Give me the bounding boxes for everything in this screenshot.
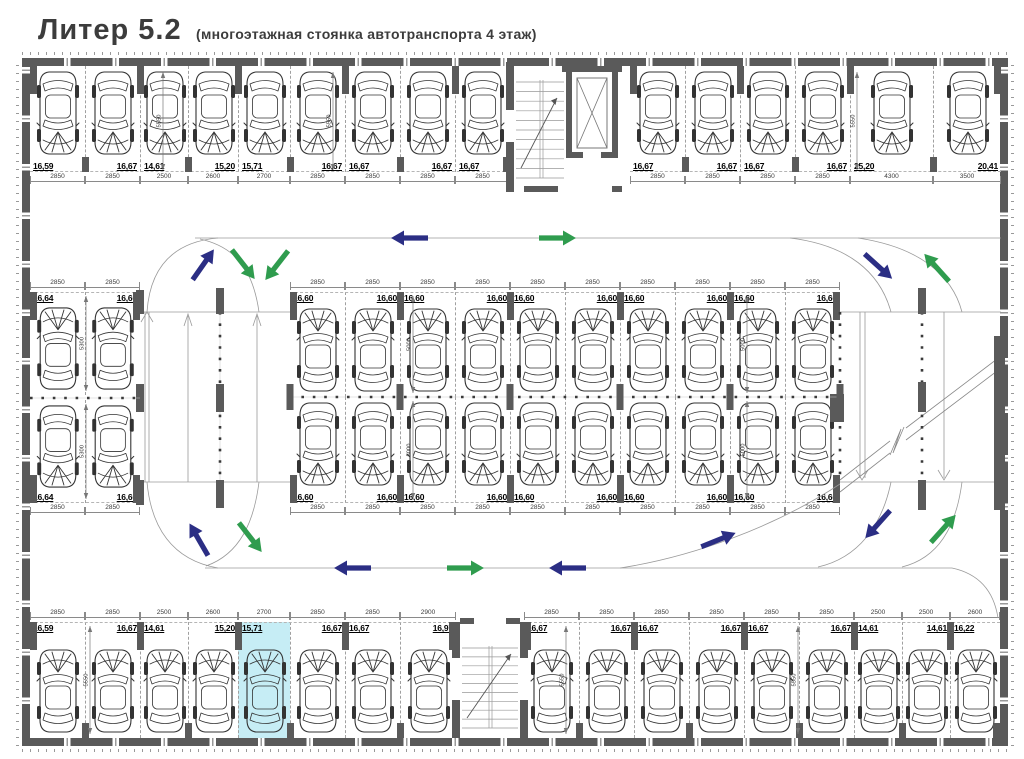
car-icon [626,400,670,488]
column-pier [452,66,459,94]
wall-stub [82,157,89,172]
parking-stall[interactable]: 16,60 [565,397,620,503]
parking-stall[interactable]: 14,61 [140,622,188,738]
parking-stall[interactable]: 16,67 [795,66,850,172]
parking-row-bottom-left: 16,59 16,67 14,61 15,20 15,71 16,67 16,6… [30,622,456,738]
wall-stub [930,157,937,172]
parking-stall[interactable]: 15,20 [188,622,238,738]
elevator-shaft [562,66,622,192]
stall-front-line [524,622,1000,623]
parking-stall[interactable]: 25,20 [850,66,933,172]
stall-width-dim: 2850 [785,504,840,516]
stall-width-dim: 2850 [785,279,840,291]
car-icon [946,69,990,157]
stall-width-dim: 2850 [744,609,799,621]
outer-wall-top [22,58,1008,66]
column-pier [833,292,840,320]
parking-row-left-block-bottom: 16,64 16,60 [30,400,140,503]
stall-area-label: 16,60 [597,492,617,502]
window-ticks-right [1011,58,1014,746]
parking-row-top-left: 16,59 16,67 14,61 15,20 15,71 16,67 16,6… [30,66,510,172]
stall-width-dim: 2850 [345,609,400,621]
width-dimension-chain: 285028502500260027002850285028502850 [30,173,510,185]
car-icon [461,306,505,394]
car-icon [461,69,505,157]
stall-area-label: 16,59 [33,161,53,171]
stall-area-label: 16,60 [404,492,424,502]
down-flow-arrow [549,561,586,576]
car-icon [351,647,395,735]
parking-stall[interactable]: 16,22 [950,622,1000,738]
car-icon [905,647,949,735]
car-icon [351,69,395,157]
stall-width-dim: 2850 [689,609,744,621]
car-icon [91,69,135,157]
parking-stall[interactable]: 16,67 [579,622,634,738]
parking-stall[interactable]: 16,60 [400,292,455,397]
width-dimension-chain: 28502850 [30,279,140,291]
stall-width-dim: 2850 [675,279,730,291]
car-icon [91,647,135,735]
wall-stub [397,723,404,738]
column-pier [727,292,734,320]
parking-stall[interactable]: 16,60 [400,397,455,503]
car-icon [243,647,287,735]
column-pier [617,475,624,503]
parking-stall[interactable]: 16,67 [799,622,854,738]
parking-stall[interactable]: 16,60 [620,292,675,397]
car-icon [296,400,340,488]
car-icon [746,69,790,157]
column-pier [30,292,37,320]
car-icon [296,69,340,157]
stall-width-dim: 3500 [933,173,1001,185]
column-pier [290,292,297,320]
stall-width-dim: 2850 [675,504,730,516]
stall-area-label: 16,67 [633,161,653,171]
stall-area-label: 15,20 [215,161,235,171]
car-icon [91,305,135,392]
car-icon [736,306,780,394]
down-flow-arrow [187,245,221,284]
up-flow-arrow [226,245,261,283]
wall-stub [185,723,192,738]
stall-area-label: 16,67 [611,623,631,633]
stall-area-label: 25,20 [854,161,874,171]
parking-stall[interactable]: 16,59 [30,622,85,738]
stall-area-label: 14,61 [144,623,164,633]
stall-area-label: 16,67 [117,623,137,633]
parking-stall[interactable]: 16,67 [345,66,400,172]
car-icon [791,400,835,488]
wall-stub [397,157,404,172]
parking-stall[interactable]: 16,60 [455,397,510,503]
stall-area-label: 20,41 [978,161,998,171]
parking-stall[interactable]: 16,67 [85,622,140,738]
parking-stall[interactable]: 16,67 [290,622,345,738]
parking-stall[interactable]: 16,60 [565,292,620,397]
wall-stub [503,157,510,172]
stall-width-dim: 2850 [345,173,400,185]
parking-stall[interactable]: 16,67 [290,66,345,172]
stall-area-label: 16,60 [597,293,617,303]
stall-area-label: 16,60 [707,293,727,303]
stall-width-dim: 2850 [30,279,85,291]
stall-area-label: 16,60 [404,293,424,303]
stall-area-label: 16,67 [827,161,847,171]
column-pier [833,475,840,503]
parking-stall[interactable]: 16,60 [510,292,565,397]
stall-area-label: 16,60 [734,293,754,303]
stall-width-dim: 2850 [400,173,455,185]
wall-stub [185,157,192,172]
ramp-slope-lines [840,356,1001,492]
column-pier [727,475,734,503]
window-ticks-top [22,52,1008,55]
column-pier [947,622,954,650]
stall-width-dim: 2850 [85,279,140,291]
stall-width-dim: 2850 [524,609,579,621]
car-icon [870,69,914,157]
ramp-left [136,288,290,508]
title-liter: Литер 5.2 [38,14,182,47]
column-pier [847,66,854,94]
stall-area-label: 15,20 [215,623,235,633]
stall-width-dim: 2850 [799,609,854,621]
stall-area-label: 16,67 [432,161,452,171]
up-flow-arrow [539,231,576,246]
car-icon [36,403,80,490]
up-flow-arrow [259,246,294,284]
stall-area-label: 16,67 [349,161,369,171]
stall-width-dim: 2850 [579,609,634,621]
car-icon [530,647,574,735]
car-icon [36,305,80,392]
column-pier [133,475,140,503]
car-icon [36,647,80,735]
column-pier [30,66,37,94]
stall-width-dim: 2850 [345,279,400,291]
wall-stub [899,723,906,738]
stall-area-label: 16,67 [748,623,768,633]
car-icon [192,647,236,735]
stall-area-label: 15,71 [242,161,262,171]
stall-width-dim: 2850 [455,173,510,185]
stall-area-label: 16,67 [744,161,764,171]
stall-width-dim: 2850 [565,504,620,516]
stall-area-label: 14,61 [144,161,164,171]
stall-width-dim: 2850 [730,504,785,516]
column-pier [507,292,514,320]
car-icon [351,306,395,394]
parking-stall[interactable]: 16,67 [744,622,799,738]
stall-area-label: 16,60 [734,492,754,502]
parking-row-bottom-right: 16,67 16,67 16,67 16,67 16,67 16,67 14,6… [524,622,1000,738]
stall-width-dim: 2850 [290,279,345,291]
parking-stall[interactable]: 16,64 [30,400,85,503]
car-icon [626,306,670,394]
parking-stall[interactable]: 16,59 [30,66,85,172]
stall-width-dim: 2500 [140,609,188,621]
car-icon [750,647,794,735]
parking-stall[interactable]: 16,60 [345,397,400,503]
stall-area-label: 16,67 [831,623,851,633]
stall-width-dim: 2850 [630,173,685,185]
outer-wall-right [1000,58,1008,746]
stall-area-label: 16,60 [624,293,644,303]
stall-area-label: 16,22 [954,623,974,633]
stall-front-line [30,292,140,293]
parking-row-island-top: 16,60 16,60 16,60 16,60 16,60 16,60 16,6… [290,292,840,397]
stall-area-label: 16,67 [459,161,479,171]
car-icon [636,69,680,157]
car-icon [243,69,287,157]
column-pier [133,292,140,320]
car-icon [143,647,187,735]
wall-stub [82,723,89,738]
parking-row-island-bottom: 16,60 16,60 16,60 16,60 16,60 16,60 16,6… [290,397,840,503]
stall-area-label: 16,60 [377,492,397,502]
ramp-right [830,288,1005,510]
column-pier [617,292,624,320]
stall-area-label: 14,61 [927,623,947,633]
parking-stall[interactable]: 16,60 [290,292,345,397]
width-dimension-chain: 2850285028502850285028502850285028502850 [290,504,840,516]
stall-width-dim: 2850 [510,279,565,291]
stall-width-dim: 4300 [850,173,933,185]
parking-stall[interactable]: 16,60 [675,397,730,503]
parking-stall[interactable]: 16,67 [455,66,510,172]
down-flow-arrow [183,520,214,560]
stall-area-label: 15,71 [242,623,262,633]
parking-stall[interactable]: 16,67 [740,66,795,172]
stall-width-dim: 2850 [685,173,740,185]
column-pier [342,66,349,94]
parking-row-left-block-top: 16,64 16,60 [30,292,140,395]
wall-stub [287,157,294,172]
car-icon [351,400,395,488]
floor-plan: Литер 5.2 (многоэтажная стоянка автотран… [0,0,1024,759]
column-pier [737,66,744,94]
stall-area-label: 16,67 [638,623,658,633]
column-pier [449,622,456,650]
column-pier [631,622,638,650]
wall-stub [686,723,693,738]
wall-stub [993,723,1000,738]
car-icon [791,306,835,394]
column-pier [342,622,349,650]
car-icon [407,647,451,735]
car-icon [736,400,780,488]
width-dimension-chain: 2850285028502850285028502850285028502850 [290,279,840,291]
stall-width-dim: 2500 [140,173,188,185]
parking-stall[interactable]: 16,60 [730,397,785,503]
parking-stall[interactable]: 16,67 [634,622,689,738]
parking-stall[interactable]: 14,61 [140,66,188,172]
stall-width-dim: 2850 [30,609,85,621]
parking-stall[interactable]: 16,60 [345,292,400,397]
parking-stall[interactable]: 16,60 [510,397,565,503]
parking-row-top-right: 16,67 16,67 16,67 16,67 25,20 20,41 [630,66,1001,172]
parking-stall[interactable]: 20,41 [933,66,1001,172]
column-pier [137,66,144,94]
stall-front-line [30,171,510,172]
stall-front-line [290,502,840,503]
stall-area-label: 14,61 [858,623,878,633]
car-icon [296,306,340,394]
car-icon [406,306,450,394]
stall-area-label: 16,60 [377,293,397,303]
stall-width-dim: 2500 [902,609,950,621]
stall-front-line [30,502,140,503]
title-subtitle: (многоэтажная стоянка автотранспорта 4 э… [196,26,537,42]
stall-width-dim: 2700 [238,609,290,621]
parking-stall[interactable]: 16,97 [400,622,456,738]
stall-area-label: 16,60 [487,492,507,502]
car-icon [801,69,845,157]
stairwell-top [506,62,564,192]
parking-stall[interactable]: 16,60 [85,400,140,503]
stall-width-dim: 2850 [290,504,345,516]
window-ticks-bottom [22,749,1008,752]
column-pier [851,622,858,650]
column-pier [290,475,297,503]
parking-stall[interactable]: 16,60 [785,292,840,397]
down-flow-arrow [860,506,896,544]
car-icon [406,400,450,488]
car-icon [516,306,560,394]
stall-width-dim: 2850 [730,279,785,291]
stall-width-dim: 2900 [400,609,456,621]
stall-area-label: 16,60 [707,492,727,502]
stall-width-dim: 2850 [400,279,455,291]
car-icon [695,647,739,735]
parking-stall[interactable]: 14,61 [902,622,950,738]
width-dimension-chain: 285028502850285043003500 [630,173,1001,185]
parking-stall[interactable]: 16,67 [524,622,579,738]
parking-stall[interactable]: 16,64 [30,292,85,395]
stall-area-label: 16,60 [514,293,534,303]
wall-stub [792,157,799,172]
car-icon [296,647,340,735]
stall-width-dim: 2850 [290,173,345,185]
stall-width-dim: 2850 [455,504,510,516]
stall-width-dim: 2850 [290,609,345,621]
window-ticks-left [16,58,19,746]
width-dimension-chain: 285028502850285028502850250025002600 [524,609,1000,621]
stall-area-label: 16,60 [487,293,507,303]
car-icon [36,69,80,157]
stall-width-dim: 2850 [85,609,140,621]
car-icon [143,69,187,157]
stall-width-dim: 2850 [30,173,85,185]
stairwell-bottom [452,618,528,738]
parking-stall[interactable]: 16,60 [85,292,140,395]
column-pier [30,622,37,650]
parking-stall[interactable]: 16,67 [689,622,744,738]
parking-stall[interactable]: 16,60 [785,397,840,503]
column-pier [397,292,404,320]
stall-width-dim: 2700 [238,173,290,185]
stall-area-label: 16,67 [721,623,741,633]
stall-area-label: 16,60 [624,492,644,502]
parking-stall[interactable]: 16,67 [345,622,400,738]
parking-stall[interactable]: 16,60 [290,397,345,503]
stall-width-dim: 2850 [30,504,85,516]
parking-stall[interactable]: 16,67 [85,66,140,172]
stall-width-dim: 2850 [510,504,565,516]
parking-stall[interactable]: 16,60 [730,292,785,397]
stall-area-label: 16,67 [349,623,369,633]
parking-stall[interactable]: 15,71 [238,66,290,172]
width-dimension-chain: 28502850 [30,504,140,516]
parking-stall-selected[interactable]: 15,71 [238,622,290,738]
car-icon [640,647,684,735]
car-icon [461,400,505,488]
parking-stall[interactable]: 14,61 [854,622,902,738]
stall-front-line [30,622,456,623]
stall-area-label: 16,67 [322,161,342,171]
stall-width-dim: 2850 [795,173,850,185]
column-pier [235,622,242,650]
column-pier [630,66,637,94]
stall-width-dim: 2850 [85,173,140,185]
stall-width-dim: 2850 [634,609,689,621]
down-flow-arrow [391,231,428,246]
stall-front-line [290,292,840,293]
stall-width-dim: 2600 [188,609,238,621]
stall-width-dim: 2850 [400,504,455,516]
column-pier [235,66,242,94]
column-pier [137,622,144,650]
parking-stall[interactable]: 16,67 [630,66,685,172]
stall-width-dim: 2600 [188,173,238,185]
car-icon [585,647,629,735]
car-icon [91,403,135,490]
car-icon [954,647,998,735]
stall-width-dim: 2850 [345,504,400,516]
stall-area-label: 16,67 [717,161,737,171]
column-pier [741,622,748,650]
parking-stall[interactable]: 15,20 [188,66,238,172]
car-icon [691,69,735,157]
car-icon [516,400,560,488]
stall-width-dim: 2850 [565,279,620,291]
parking-stall[interactable]: 16,60 [620,397,675,503]
column-pier [524,622,531,650]
parking-stall[interactable]: 16,60 [675,292,730,397]
car-icon [681,400,725,488]
drawing-title: Литер 5.2 (многоэтажная стоянка автотран… [38,14,537,47]
stall-width-dim: 2850 [740,173,795,185]
column-pier [507,475,514,503]
stall-width-dim: 2850 [455,279,510,291]
outer-wall-bottom [22,738,1008,746]
stall-area-label: 16,60 [514,492,534,502]
car-icon [681,306,725,394]
parking-stall[interactable]: 16,67 [685,66,740,172]
stall-width-dim: 2850 [620,504,675,516]
parking-stall[interactable]: 16,60 [455,292,510,397]
up-flow-arrow [925,510,961,548]
car-icon [571,306,615,394]
car-icon [805,647,849,735]
column-pier [994,66,1001,94]
up-flow-arrow [233,518,268,556]
parking-stall[interactable]: 16,67 [400,66,455,172]
car-icon [857,647,901,735]
width-dimension-chain: 28502850250026002700285028502900 [30,609,456,621]
